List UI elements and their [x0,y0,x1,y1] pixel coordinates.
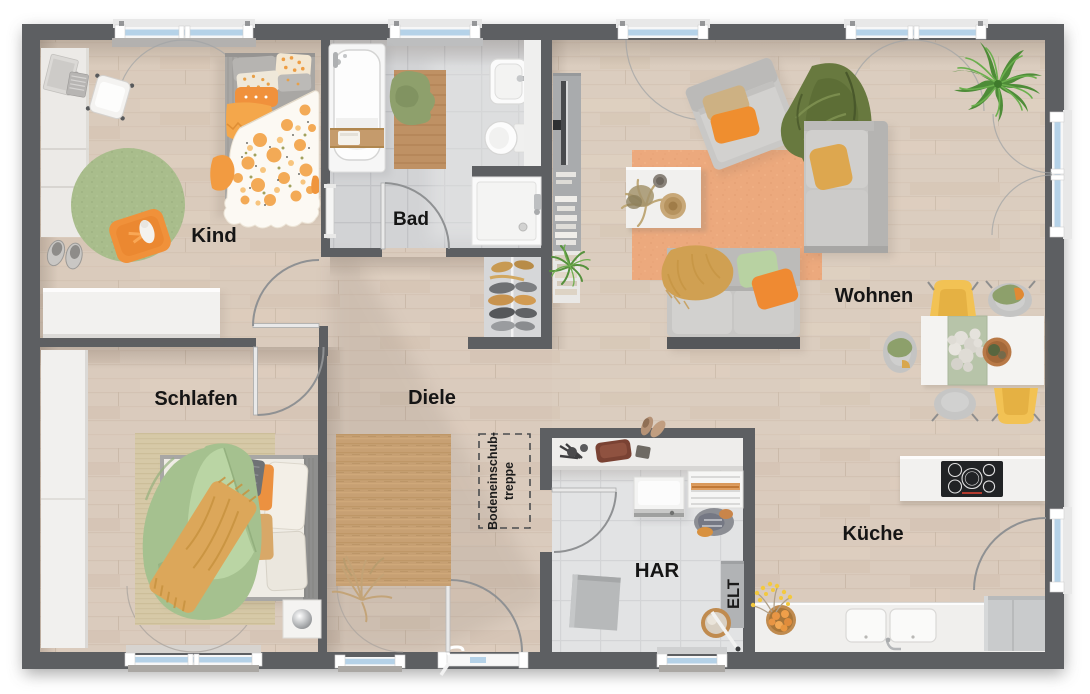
svg-text:Bodeneinschub-: Bodeneinschub- [486,432,500,530]
svg-text:Diele: Diele [408,387,456,409]
svg-text:treppe: treppe [502,462,516,500]
svg-text:HAR: HAR [635,559,680,582]
svg-text:Kind: Kind [191,224,237,247]
svg-text:Bad: Bad [393,209,429,230]
svg-text:ELT: ELT [725,579,743,609]
svg-text:Küche: Küche [842,523,903,545]
svg-text:Schlafen: Schlafen [154,388,237,410]
svg-text:Wohnen: Wohnen [835,285,914,307]
